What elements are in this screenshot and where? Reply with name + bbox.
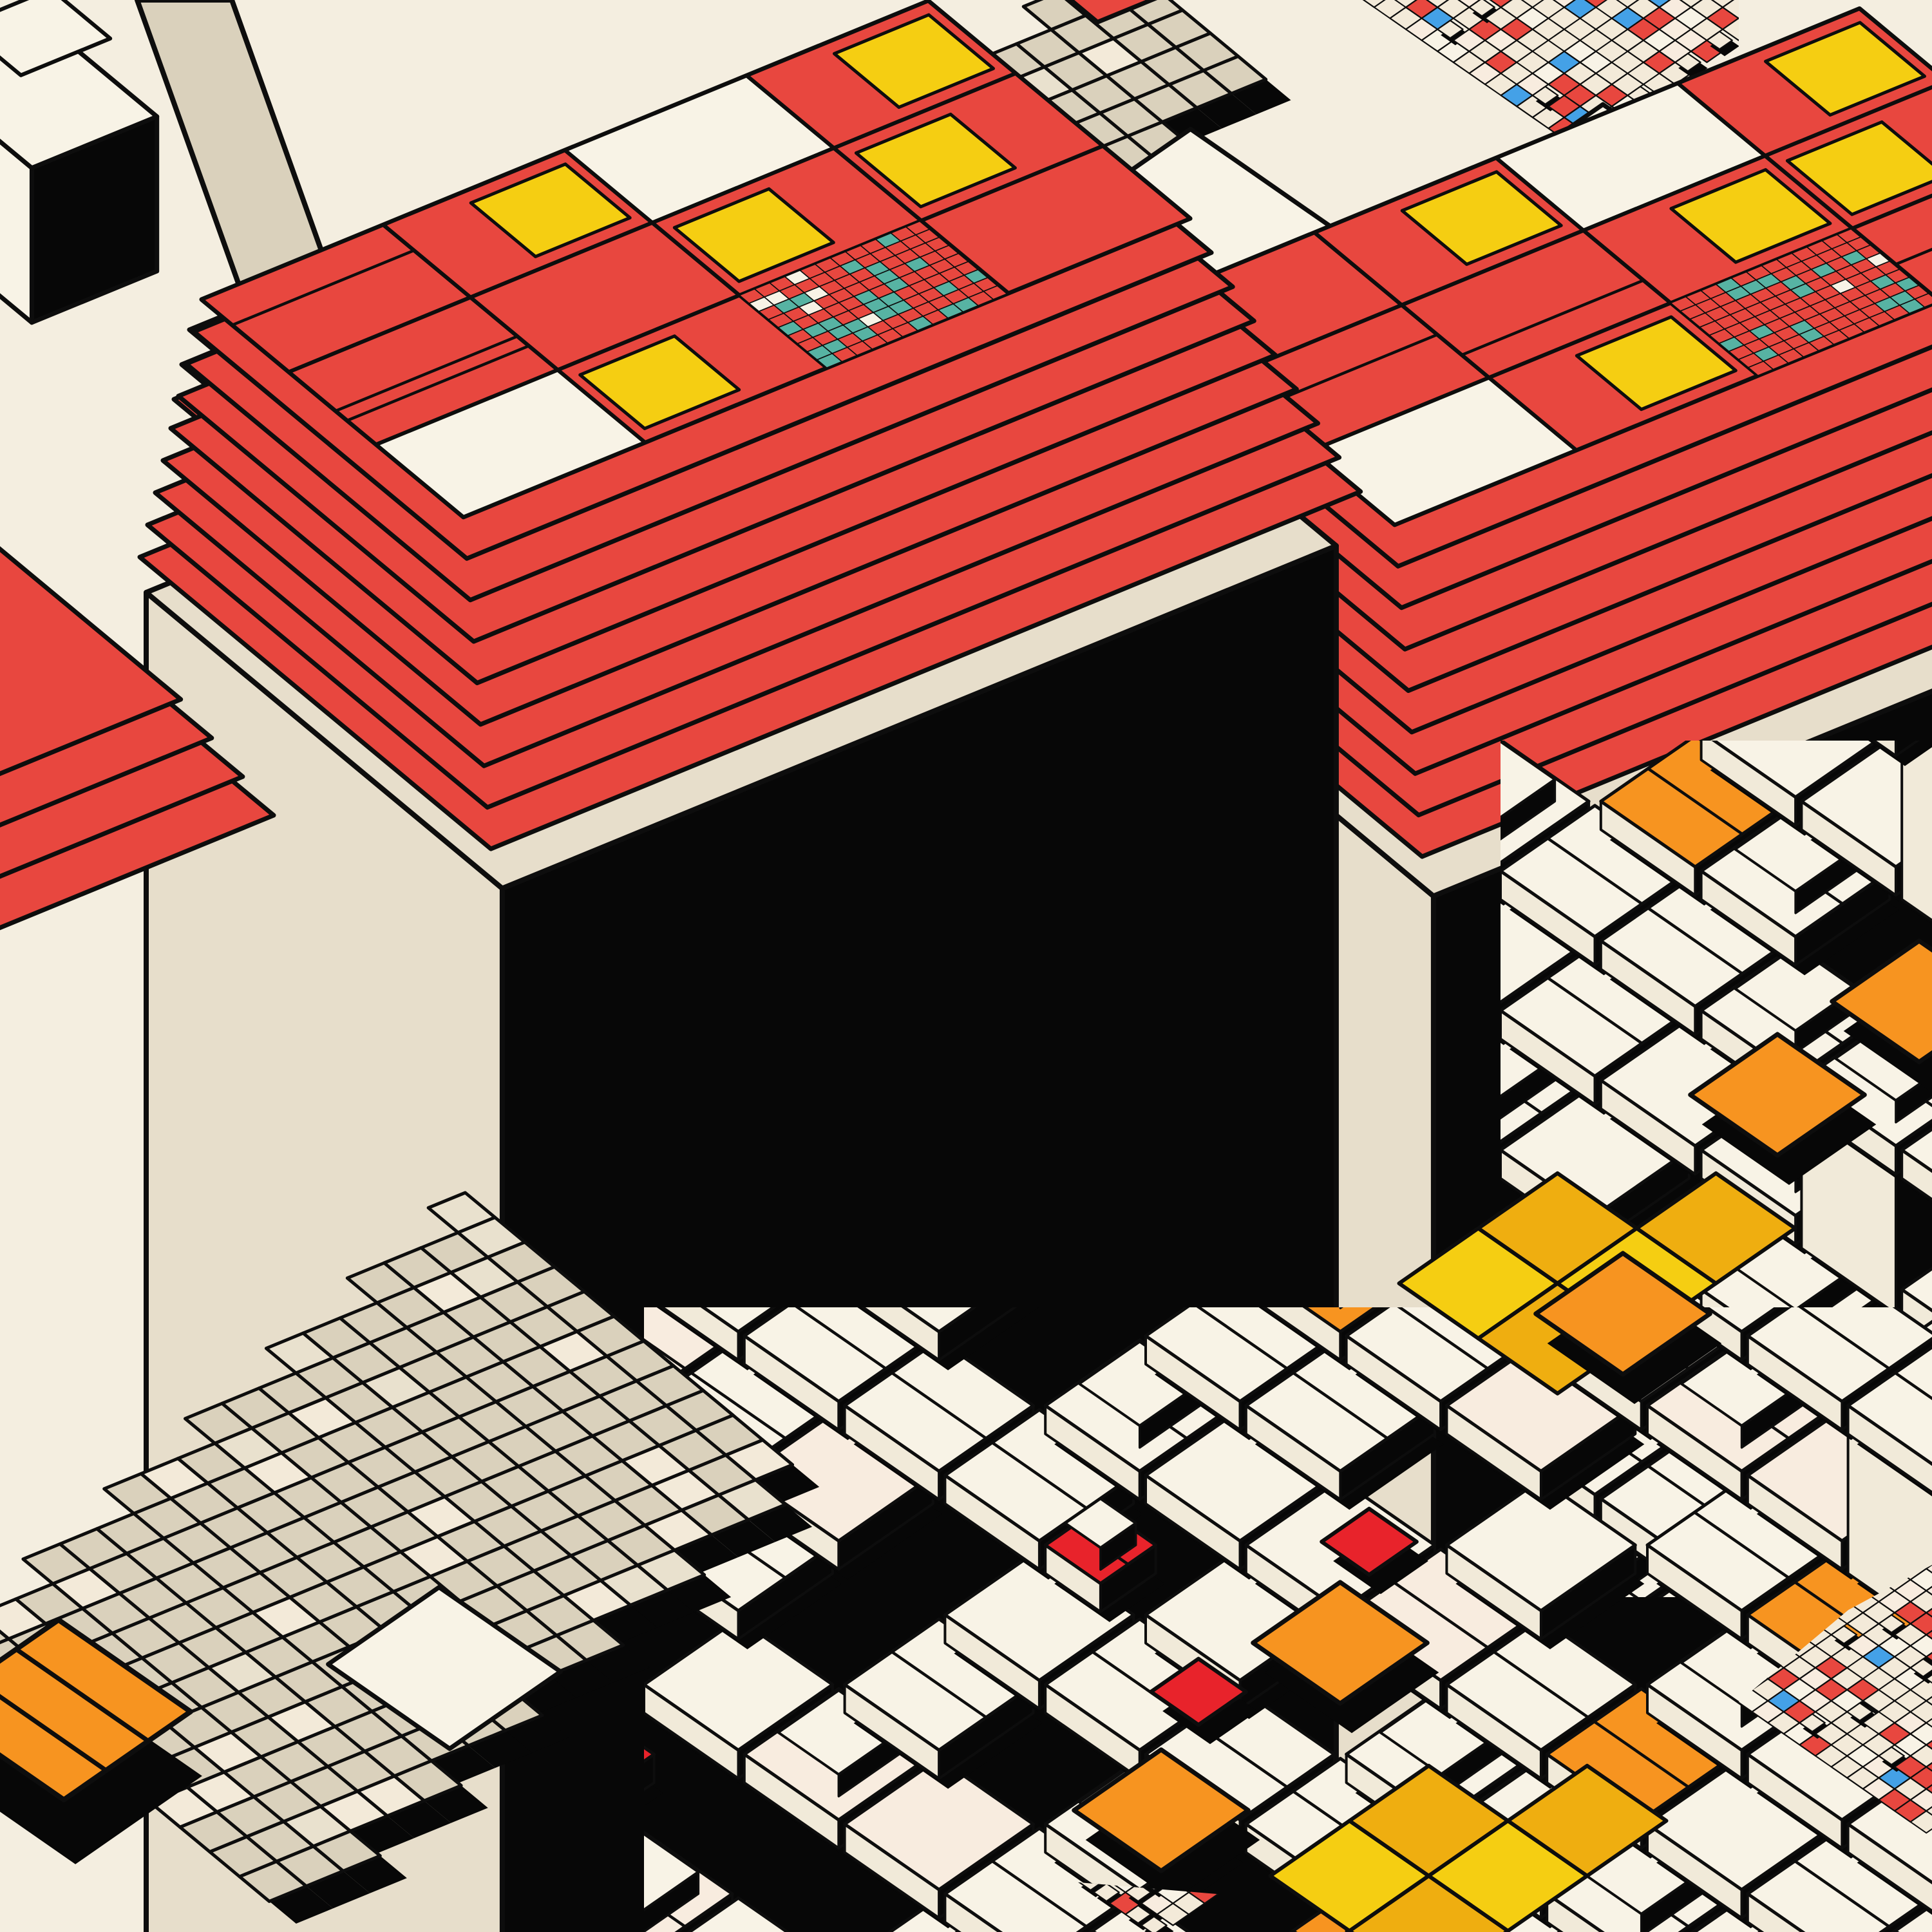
isometric-generative-artwork [0,0,1932,1932]
artwork-canvas: isometric generative city artwork [0,0,1932,1932]
